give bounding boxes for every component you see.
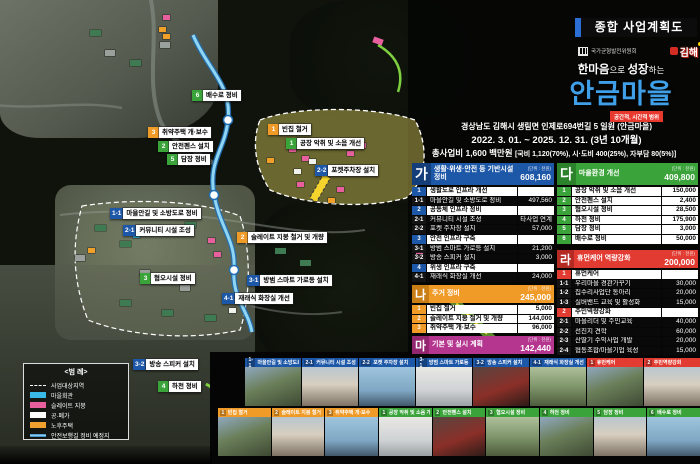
- photo-thumbnail: 1 빈집 철거: [218, 408, 271, 456]
- row-value: [518, 264, 554, 273]
- section-title: 주거 정비: [429, 290, 520, 298]
- photo-number: 6: [649, 410, 655, 416]
- annotation-label: 방송 스피커 설치: [146, 359, 197, 370]
- city-emblem-icon: [670, 47, 678, 55]
- photo-label: 4-1 재래식 화장실 개선: [530, 358, 586, 367]
- annotation-label: 포켓주차장 설치: [328, 165, 378, 176]
- photo-caption: 방송 스피커 설치: [487, 359, 522, 366]
- gimhae-city-logo: 김해: [670, 44, 698, 59]
- row-number: 2: [412, 315, 426, 324]
- unit-label: (단위 : 천원): [520, 337, 551, 343]
- table-row: 4 하천 정비 175,900: [557, 216, 698, 225]
- city-logo-text: 김해: [680, 44, 698, 59]
- photo-number: 1: [589, 360, 595, 366]
- row-label: 방범 스마트 가로등 설치: [427, 245, 517, 254]
- row-label: 배수로 정비: [572, 235, 661, 244]
- section-title: 휴먼케어 역량강화: [574, 255, 664, 263]
- photo-number: 2-1: [304, 360, 314, 366]
- row-label: 마을안길 및 소방도로 정비: [427, 197, 517, 206]
- photo-label: 3 혐오시설 정비: [486, 408, 539, 417]
- section-total-wrap: (단위 : 천원) 409,800: [664, 166, 695, 182]
- photo-label: 1-1 마을안길 및 소방도로 정비: [245, 358, 301, 367]
- photo-number: 2-2: [361, 360, 371, 366]
- row-number: 3-1: [412, 245, 426, 254]
- row-label: 커뮤니티 시설 조성: [427, 216, 517, 225]
- row-number: 3: [557, 206, 571, 215]
- annotation-label: 혐오시설 정비: [151, 273, 195, 284]
- table-environment-header: 다 마을환경 개선 (단위 : 천원) 409,800: [557, 163, 698, 185]
- annotation-number-badge: 5: [167, 154, 178, 165]
- building-marker: [105, 50, 115, 56]
- row-value: 50,000: [662, 235, 698, 244]
- row-label: 산딸기 수익사업 개발: [572, 337, 661, 346]
- village-name-title: 안금마을: [542, 72, 700, 111]
- row-value: 20,000: [662, 289, 698, 298]
- photo-image: [433, 417, 486, 456]
- annotation-number-badge: 2: [237, 232, 248, 243]
- photo-number: 3: [488, 410, 494, 416]
- legend-item: 사업대상지역: [30, 380, 122, 390]
- building-marker: [328, 198, 335, 203]
- row-label: 담장 정비: [572, 225, 661, 234]
- row-value: 3,000: [662, 225, 698, 234]
- committee-logo: 국가균형발전위원회: [578, 47, 637, 56]
- row-number: 2-1: [557, 318, 571, 327]
- table-masterplan: 마 기본 및 실시 계획 (단위 : 천원) 142,440: [412, 336, 554, 354]
- building-marker: [300, 260, 311, 266]
- photo-number: 5: [596, 410, 602, 416]
- table-row: 3-2 방송 스피커 설치 3,000: [412, 254, 554, 263]
- photo-caption: 포켓 주차장 설치: [373, 359, 408, 366]
- photo-caption: 배수로 정비: [657, 409, 681, 416]
- annotation-label: 슬레이트 지붕 철거 및 개량: [248, 232, 327, 243]
- photo-image: [647, 417, 700, 456]
- row-value: 20,000: [662, 337, 698, 346]
- row-value: [518, 235, 554, 244]
- table-environment: 다 마을환경 개선 (단위 : 천원) 409,800 1 공장 악취 및 소음…: [557, 163, 698, 245]
- annotation-label: 취약주택 개·보수: [159, 127, 211, 138]
- row-value: [518, 187, 554, 196]
- section-total: 142,440: [520, 343, 551, 353]
- photo-label: 2 주민역량강화: [644, 358, 700, 367]
- row-label: 슬레이트 지붕 철거 및 개량: [427, 315, 517, 324]
- annotation-number-badge: 3-2: [133, 359, 146, 370]
- photo-image: [644, 367, 700, 406]
- row-number: 1-2: [557, 289, 571, 298]
- row-value: 타사업 연계: [518, 216, 554, 225]
- annotation-number-badge: 6: [192, 90, 203, 101]
- photo-thumbnail: 2-1 커뮤니티 시설 조성: [302, 358, 358, 406]
- row-number: 1: [412, 305, 426, 314]
- photo-thumbnail: 3-1 방범 스마트 가로등 설치: [416, 358, 472, 406]
- row-label: 안전 인프라 구축: [427, 235, 517, 244]
- section-total-wrap: (단위 : 천원) 200,000: [664, 251, 695, 267]
- building-marker: [297, 182, 304, 187]
- row-label: 선진지 견학: [572, 328, 661, 337]
- annotation-label: 방범 스마트 가로등 설치: [260, 275, 331, 286]
- table-infrastructure: 가 생활·위생·안전 등 기반시설 정비 (단위 : 천원) 608,160 1…: [412, 163, 554, 283]
- row-number: 1: [557, 270, 571, 279]
- photo-caption: 안전펜스 설치: [442, 409, 471, 416]
- row-value: [518, 206, 554, 215]
- photo-thumbnail: 3-2 방송 스피커 설치: [473, 358, 529, 406]
- photo-caption: 빈집 철거: [228, 409, 248, 416]
- photo-thumbnail: 3 혐오시설 정비: [486, 408, 539, 456]
- building-marker: [180, 285, 190, 291]
- table-row: 3 취약주택 개·보수 96,000: [412, 324, 554, 333]
- legend-label: 안전보행길 정비 예정지: [51, 431, 110, 440]
- table-row: 2-4 협동조합/마을기업 육성 15,000: [557, 347, 698, 356]
- photo-label: 2 슬레이트 지붕 철거 및 개량: [272, 408, 325, 417]
- photo-label: 3-1 방범 스마트 가로등 설치: [416, 358, 472, 367]
- unit-label: (단위 : 천원): [664, 166, 695, 172]
- legend-swatch: [30, 422, 46, 428]
- legend-label: 사업대상지역: [51, 381, 84, 390]
- table-row: 1-1 우리마을 경관가꾸기 30,000: [557, 280, 698, 289]
- path-node: [230, 266, 239, 275]
- table-row: 2 안전펜스 설치 2,400: [557, 197, 698, 206]
- building-marker: [120, 300, 131, 306]
- building-marker: [208, 238, 215, 243]
- row-number: 5: [557, 225, 571, 234]
- unit-label: (단위 : 천원): [664, 251, 695, 257]
- table-row: 2-2 선진지 견학 60,000: [557, 328, 698, 337]
- photo-number: 3-2: [475, 360, 485, 366]
- building-marker: [162, 310, 173, 316]
- legend-swatch: [30, 412, 46, 418]
- drain-marker: [372, 36, 383, 45]
- section-code: 다: [557, 163, 576, 185]
- photo-caption: 혐오시설 정비: [496, 409, 525, 416]
- row-number: 2-2: [412, 225, 426, 234]
- photo-image: [218, 417, 271, 456]
- table-row: 2-3 산딸기 수익사업 개발 20,000: [557, 337, 698, 346]
- photo-image: [486, 417, 539, 456]
- table-infrastructure-header: 가 생활·위생·안전 등 기반시설 정비 (단위 : 천원) 608,160: [412, 163, 554, 185]
- row-number: 1-3: [557, 299, 571, 308]
- row-value: 28,500: [662, 206, 698, 215]
- table-row: 3 안전 인프라 구축: [412, 235, 554, 244]
- row-label: 취약주택 개·보수: [427, 324, 517, 333]
- address-line: 경상남도 김해시 생림면 인제로694번길 5 일원 (안금마을): [415, 121, 698, 132]
- table-row: 4 위생 인프라 구축: [412, 264, 554, 273]
- legend-item: 안전보행길 정비 예정지: [30, 430, 122, 440]
- photo-image: [325, 417, 378, 456]
- row-number: 2-1: [412, 216, 426, 225]
- row-value: 144,000: [518, 315, 554, 324]
- building-marker: [275, 248, 286, 254]
- section-total-wrap: (단위 : 천원) 608,160: [520, 166, 551, 182]
- building-marker: [309, 159, 316, 164]
- road-line: [0, 105, 122, 108]
- annotation-label: 커뮤니티 시설 조성: [136, 225, 193, 236]
- table-row: 2 공동체 인프라 정비: [412, 206, 554, 215]
- section-code: 라: [557, 250, 574, 268]
- row-number: 3: [412, 235, 426, 244]
- row-number: 2-3: [557, 337, 571, 346]
- table-row: 2 주민역량강화: [557, 308, 698, 317]
- photo-strip-top: 1-1 마을안길 및 소방도로 정비 2-1 커뮤니티 시설 조성 2-2 포켓…: [245, 358, 700, 406]
- photo-caption: 하천 정비: [550, 409, 570, 416]
- row-value: 3,000: [518, 254, 554, 263]
- page-title: 종합 사업계획도: [575, 18, 697, 37]
- building-marker: [163, 34, 170, 39]
- section-total-wrap: (단위 : 천원) 142,440: [520, 337, 551, 353]
- annotation-label: 마을안길 및 소방도로 정비: [123, 208, 200, 219]
- table-row: 2-2 포켓 주차장 설치 57,000: [412, 225, 554, 234]
- section-title: 기본 및 실시 계획: [429, 341, 520, 349]
- row-label: 방송 스피커 설치: [427, 254, 517, 263]
- row-value: 2,400: [662, 197, 698, 206]
- section-total: 409,800: [664, 172, 695, 182]
- table-row: 1-3 실버밴드 교육 및 활성화 15,000: [557, 299, 698, 308]
- row-value: [662, 308, 698, 317]
- table-row: 5 담장 정비 3,000: [557, 225, 698, 234]
- photo-number: 4: [542, 410, 548, 416]
- legend-swatch: [30, 385, 46, 386]
- photo-thumbnail: 4 하천 정비: [540, 408, 593, 456]
- photo-thumbnail: 1-1 마을안길 및 소방도로 정비: [245, 358, 301, 406]
- photo-image: [473, 367, 529, 406]
- annotation-number-badge: 3-1: [247, 275, 260, 286]
- section-code: 가: [412, 163, 431, 185]
- row-number: 1-1: [557, 280, 571, 289]
- photo-number: 2: [274, 410, 280, 416]
- photo-thumbnail: 1 공장 악취 및 소음 개선: [379, 408, 432, 456]
- row-value: [662, 270, 698, 279]
- photo-image: [416, 367, 472, 406]
- photo-number: 1: [381, 410, 387, 416]
- photo-thumbnail: 3 취약주택 개·보수: [325, 408, 378, 456]
- annotation-label: 재래식 화장실 개선: [235, 293, 292, 304]
- row-value: 40,000: [662, 318, 698, 327]
- photo-label: 1 공장 악취 및 소음 개선: [379, 408, 432, 417]
- row-label: 휴먼케어: [572, 270, 661, 279]
- legend-swatch: [30, 402, 46, 408]
- table-row: 3 혐오시설 정비 28,500: [557, 206, 698, 215]
- photo-caption: 공장 악취 및 소음 개선: [389, 409, 430, 416]
- photo-caption: 주민역량강화: [654, 359, 682, 366]
- photo-number: 3: [327, 410, 333, 416]
- table-row: 3-1 방범 스마트 가로등 설치 21,200: [412, 245, 554, 254]
- legend-swatch: [30, 392, 46, 398]
- photo-number: 2: [435, 410, 441, 416]
- table-row: 1-1 마을안길 및 소방도로 정비 497,560: [412, 197, 554, 206]
- annotation-number-badge: 3: [148, 127, 159, 138]
- row-number: 2-2: [557, 328, 571, 337]
- table-row: 2-1 마을리더 및 주민교육 40,000: [557, 318, 698, 327]
- map-annotation: 2-1 커뮤니티 시설 조성: [123, 225, 194, 236]
- legend-item: 슬레이트 지붕: [30, 400, 122, 410]
- row-label: 포켓 주차장 설치: [427, 225, 517, 234]
- legend-item: 공·폐가: [30, 410, 122, 420]
- photo-label: 2-1 커뮤니티 시설 조성: [302, 358, 358, 367]
- map-annotation: 4 하천 정비: [158, 381, 201, 392]
- photo-number: 1: [220, 410, 226, 416]
- photo-thumbnail: 2 슬레이트 지붕 철거 및 개량: [272, 408, 325, 456]
- legend-item: 노후주택: [30, 420, 122, 430]
- annotation-number-badge: 1: [286, 138, 297, 149]
- row-value: 57,000: [518, 225, 554, 234]
- photo-number: 4-1: [532, 360, 542, 366]
- annotation-label: 빈집 철거: [279, 124, 311, 135]
- row-value: 60,000: [662, 328, 698, 337]
- section-title: 생활·위생·안전 등 기반시설 정비: [431, 166, 520, 181]
- photo-image: [587, 367, 643, 406]
- photo-image: [530, 367, 586, 406]
- photo-image: [272, 417, 325, 456]
- section-total-wrap: (단위 : 천원) 245,000: [520, 286, 551, 302]
- photo-image: [594, 417, 647, 456]
- row-value: 150,000: [662, 187, 698, 196]
- table-capacity: 라 휴먼케어 역량강화 (단위 : 천원) 200,000 1 휴먼케어 1-1…: [557, 250, 698, 356]
- map-annotation: 1-1 마을안길 및 소방도로 정비: [110, 208, 201, 219]
- legend-title: <범 례>: [30, 367, 122, 377]
- table-capacity-header: 라 휴먼케어 역량강화 (단위 : 천원) 200,000: [557, 250, 698, 268]
- photo-caption: 슬레이트 지붕 철거 및 개량: [281, 409, 322, 416]
- building-marker: [130, 60, 141, 66]
- row-value: 5,000: [518, 305, 554, 314]
- row-value: 15,000: [662, 347, 698, 356]
- row-label: 공장 악취 및 소음 개선: [572, 187, 661, 196]
- row-number: 1: [557, 187, 571, 196]
- photo-caption: 담장 정비: [603, 409, 623, 416]
- photo-caption: 마을안길 및 소방도로 정비: [257, 359, 299, 366]
- row-label: 재래식 화장실 개선: [427, 273, 517, 282]
- photo-label: 3 취약주택 개·보수: [325, 408, 378, 417]
- photo-label: 1 빈집 철거: [218, 408, 271, 417]
- building-marker: [294, 169, 301, 174]
- row-value: 175,900: [662, 216, 698, 225]
- row-number: 1: [412, 187, 426, 196]
- map-annotation: 4-1 재래식 화장실 개선: [222, 293, 293, 304]
- photo-caption: 방범 스마트 가로등 설치: [429, 359, 470, 366]
- budget-line: 총사업비 1,600 백만원 [국비 1,120(70%), 시·도비 400(…: [408, 143, 700, 161]
- building-marker: [90, 30, 101, 36]
- photo-image: [359, 367, 415, 406]
- row-number: 2: [557, 308, 571, 317]
- building-marker: [267, 158, 274, 163]
- legend-item: 마을회관: [30, 390, 122, 400]
- annotation-number-badge: 1: [268, 124, 279, 135]
- photo-caption: 취약주택 개·보수: [335, 409, 370, 416]
- annotation-number-badge: 2-1: [123, 225, 136, 236]
- map-annotation: 1 공장 악취 및 소음 개선: [286, 138, 364, 149]
- annotation-label: 담장 정비: [178, 154, 210, 165]
- legend-label: 마을회관: [51, 391, 73, 400]
- table-row: 6 배수로 정비 50,000: [557, 235, 698, 244]
- photo-label: 6 배수로 정비: [647, 408, 700, 417]
- map-annotation: 3 취약주택 개·보수: [148, 127, 211, 138]
- bottom-shade: [0, 446, 212, 464]
- row-number: 3-2: [412, 254, 426, 263]
- map-annotation: 2-2 포켓주차장 설치: [315, 165, 378, 176]
- plan-poster: 6 배수로 정비 1 빈집 철거 3 취약주택 개·보수 1 공장 악취 및 소…: [0, 0, 700, 464]
- photo-thumbnail: 2-2 포켓 주차장 설치: [359, 358, 415, 406]
- building-marker: [95, 225, 106, 231]
- photo-image: [540, 417, 593, 456]
- photo-image: [379, 417, 432, 456]
- row-number: 6: [557, 235, 571, 244]
- table-masterplan-header: 마 기본 및 실시 계획 (단위 : 천원) 142,440: [412, 336, 554, 354]
- map-annotation: 1 빈집 철거: [268, 124, 311, 135]
- annotation-number-badge: 1-1: [110, 208, 123, 219]
- photo-thumbnail: 1 휴먼케어: [587, 358, 643, 406]
- row-label: 우리마을 경관가꾸기: [572, 280, 661, 289]
- photo-thumbnail: 4-1 재래식 화장실 개선: [530, 358, 586, 406]
- building-marker: [88, 248, 95, 253]
- table-row: 2 슬레이트 지붕 철거 및 개량 144,000: [412, 315, 554, 324]
- section-code: 나: [412, 285, 429, 303]
- annotation-number-badge: 2: [158, 141, 169, 152]
- photo-image: [245, 367, 301, 406]
- building-marker: [229, 308, 236, 313]
- section-total: 245,000: [520, 292, 551, 302]
- photo-caption: 커뮤니티 시설 조성: [316, 359, 356, 366]
- annotation-number-badge: 4: [158, 381, 169, 392]
- logo-row: 국가균형발전위원회 김해: [578, 43, 698, 59]
- row-label: 혐오시설 정비: [572, 206, 661, 215]
- annotation-number-badge: 3: [140, 273, 151, 284]
- row-value: 15,000: [662, 299, 698, 308]
- unit-label: (단위 : 천원): [520, 166, 551, 172]
- row-number: 4-1: [412, 273, 426, 282]
- photo-thumbnail: 2 주민역량강화: [644, 358, 700, 406]
- row-label: 생활도로 인프라 개선: [427, 187, 517, 196]
- row-label: 주민역량강화: [572, 308, 661, 317]
- row-label: 공동체 인프라 정비: [427, 206, 517, 215]
- legend-label: 공·폐가: [51, 411, 70, 420]
- row-label: 하천 정비: [572, 216, 661, 225]
- annotation-label: 배수로 정비: [203, 90, 241, 101]
- row-value: 21,200: [518, 245, 554, 254]
- row-number: 2-4: [557, 347, 571, 356]
- map-annotation: 2 안전펜스 설치: [158, 141, 213, 152]
- map-annotation: 3-2 방송 스피커 설치: [133, 359, 198, 370]
- row-number: 1-1: [412, 197, 426, 206]
- legend-label: 노후주택: [51, 421, 73, 430]
- building-marker: [160, 42, 170, 48]
- path-node: [224, 116, 233, 125]
- photo-thumbnail: 6 배수로 정비: [647, 408, 700, 456]
- building-marker: [337, 187, 344, 192]
- photo-label: 4 하천 정비: [540, 408, 593, 417]
- row-number: 4: [412, 264, 426, 273]
- photo-number: 2: [646, 360, 652, 366]
- row-value: 96,000: [518, 324, 554, 333]
- annotation-label: 하천 정비: [169, 381, 201, 392]
- table-row: 1 공장 악취 및 소음 개선 150,000: [557, 187, 698, 196]
- legend: <범 례> 사업대상지역 마을회관 슬레이트 지붕 공·폐가 노후주택: [23, 363, 129, 440]
- row-value: 24,000: [518, 273, 554, 282]
- row-number: 2: [412, 206, 426, 215]
- row-label: 빈집 철거: [427, 305, 517, 314]
- table-housing-header: 나 주거 정비 (단위 : 천원) 245,000: [412, 285, 554, 303]
- section-total: 200,000: [664, 257, 695, 267]
- section-total: 608,160: [520, 172, 551, 182]
- row-label: 실버밴드 교육 및 활성화: [572, 299, 661, 308]
- photo-caption: 휴먼케어: [597, 359, 615, 366]
- row-label: 안전펜스 설치: [572, 197, 661, 206]
- section-title: 마을환경 개선: [576, 170, 664, 178]
- row-label: 집수리사업단 동아리: [572, 289, 661, 298]
- map-annotation: 5 담장 정비: [167, 154, 210, 165]
- row-label: 위생 인프라 구축: [427, 264, 517, 273]
- table-housing: 나 주거 정비 (단위 : 천원) 245,000 1 빈집 철거 5,000 …: [412, 285, 554, 334]
- photo-strip-bottom: 1 빈집 철거 2 슬레이트 지붕 철거 및 개량 3 취약주택 개·보수: [218, 408, 700, 456]
- building-marker: [205, 315, 216, 321]
- legend-label: 슬레이트 지붕: [51, 401, 86, 410]
